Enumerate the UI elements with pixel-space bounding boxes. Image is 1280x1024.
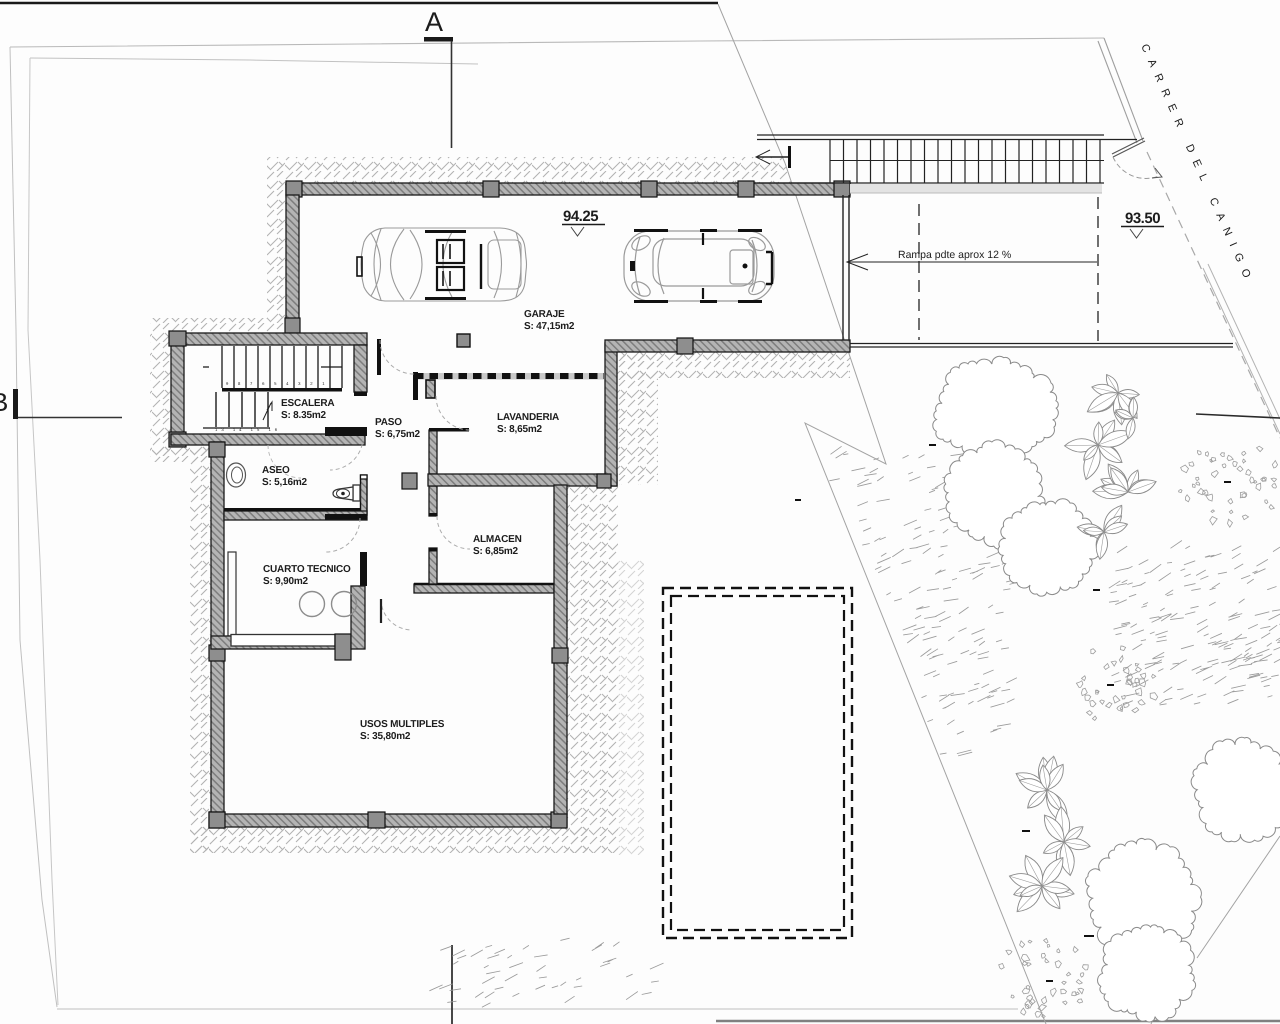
svg-text:B: B [0,387,8,417]
svg-text:CUARTO TECNICO: CUARTO TECNICO [263,564,351,575]
svg-text:987654321: 987654321 [226,381,334,386]
svg-text:PASO: PASO [375,417,402,428]
svg-text:ALMACEN: ALMACEN [473,534,522,545]
svg-text:USOS MULTIPLES: USOS MULTIPLES [360,719,445,730]
svg-text:ESCALERA: ESCALERA [281,398,334,409]
svg-text:94.25: 94.25 [563,208,598,225]
svg-text:S: 6,75m2: S: 6,75m2 [375,429,421,440]
svg-text:13 14 15 16: 13 14 15 16 [215,427,281,432]
svg-text:S: 8,65m2: S: 8,65m2 [497,424,543,435]
svg-text:ASEO: ASEO [262,465,290,476]
svg-text:GARAJE: GARAJE [524,309,565,320]
svg-text:S: 6,85m2: S: 6,85m2 [473,546,519,557]
svg-text:S: 5,16m2: S: 5,16m2 [262,477,308,488]
svg-text:Rampa pdte aprox 12 %: Rampa pdte aprox 12 % [898,249,1011,261]
svg-text:S: 35,80m2: S: 35,80m2 [360,731,411,742]
svg-text:S: 8.35m2: S: 8.35m2 [281,410,327,421]
svg-text:S: 47,15m2: S: 47,15m2 [524,321,575,332]
svg-text:S: 9,90m2: S: 9,90m2 [263,576,309,587]
svg-text:LAVANDERIA: LAVANDERIA [497,412,559,423]
svg-text:A: A [425,7,443,37]
svg-text:93.50: 93.50 [1125,210,1160,227]
